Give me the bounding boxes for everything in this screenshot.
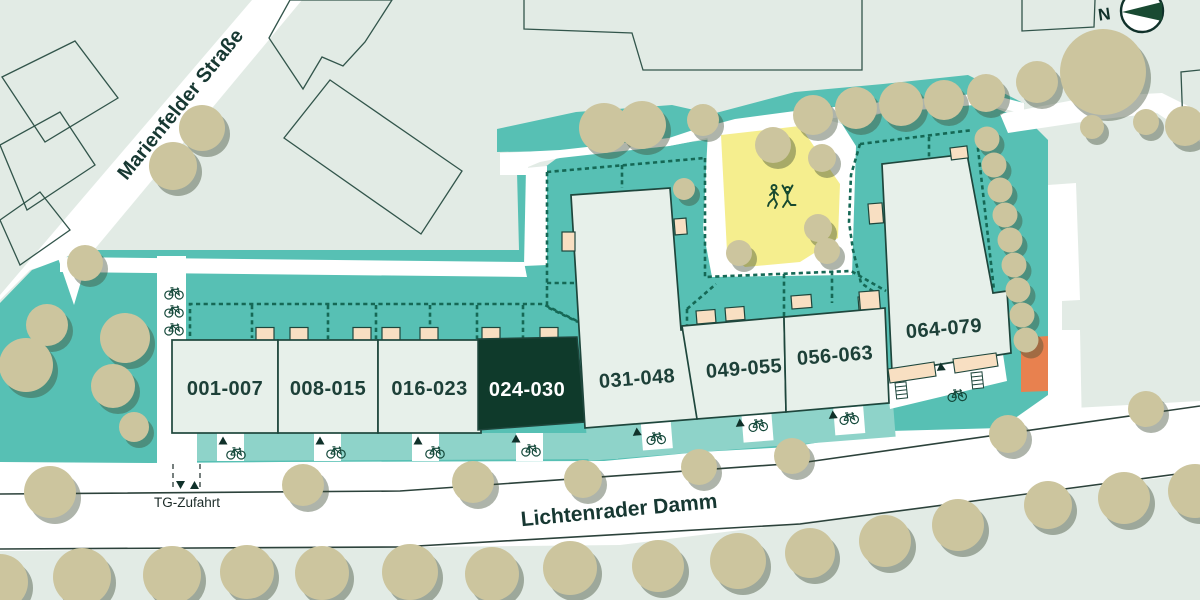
svg-text:016-023: 016-023 (391, 378, 467, 400)
svg-text:N: N (1097, 4, 1112, 25)
svg-text:TG-Zufahrt: TG-Zufahrt (154, 495, 220, 510)
svg-text:001-007: 001-007 (187, 378, 263, 400)
svg-text:024-030: 024-030 (489, 379, 565, 401)
svg-text:008-015: 008-015 (290, 378, 366, 400)
